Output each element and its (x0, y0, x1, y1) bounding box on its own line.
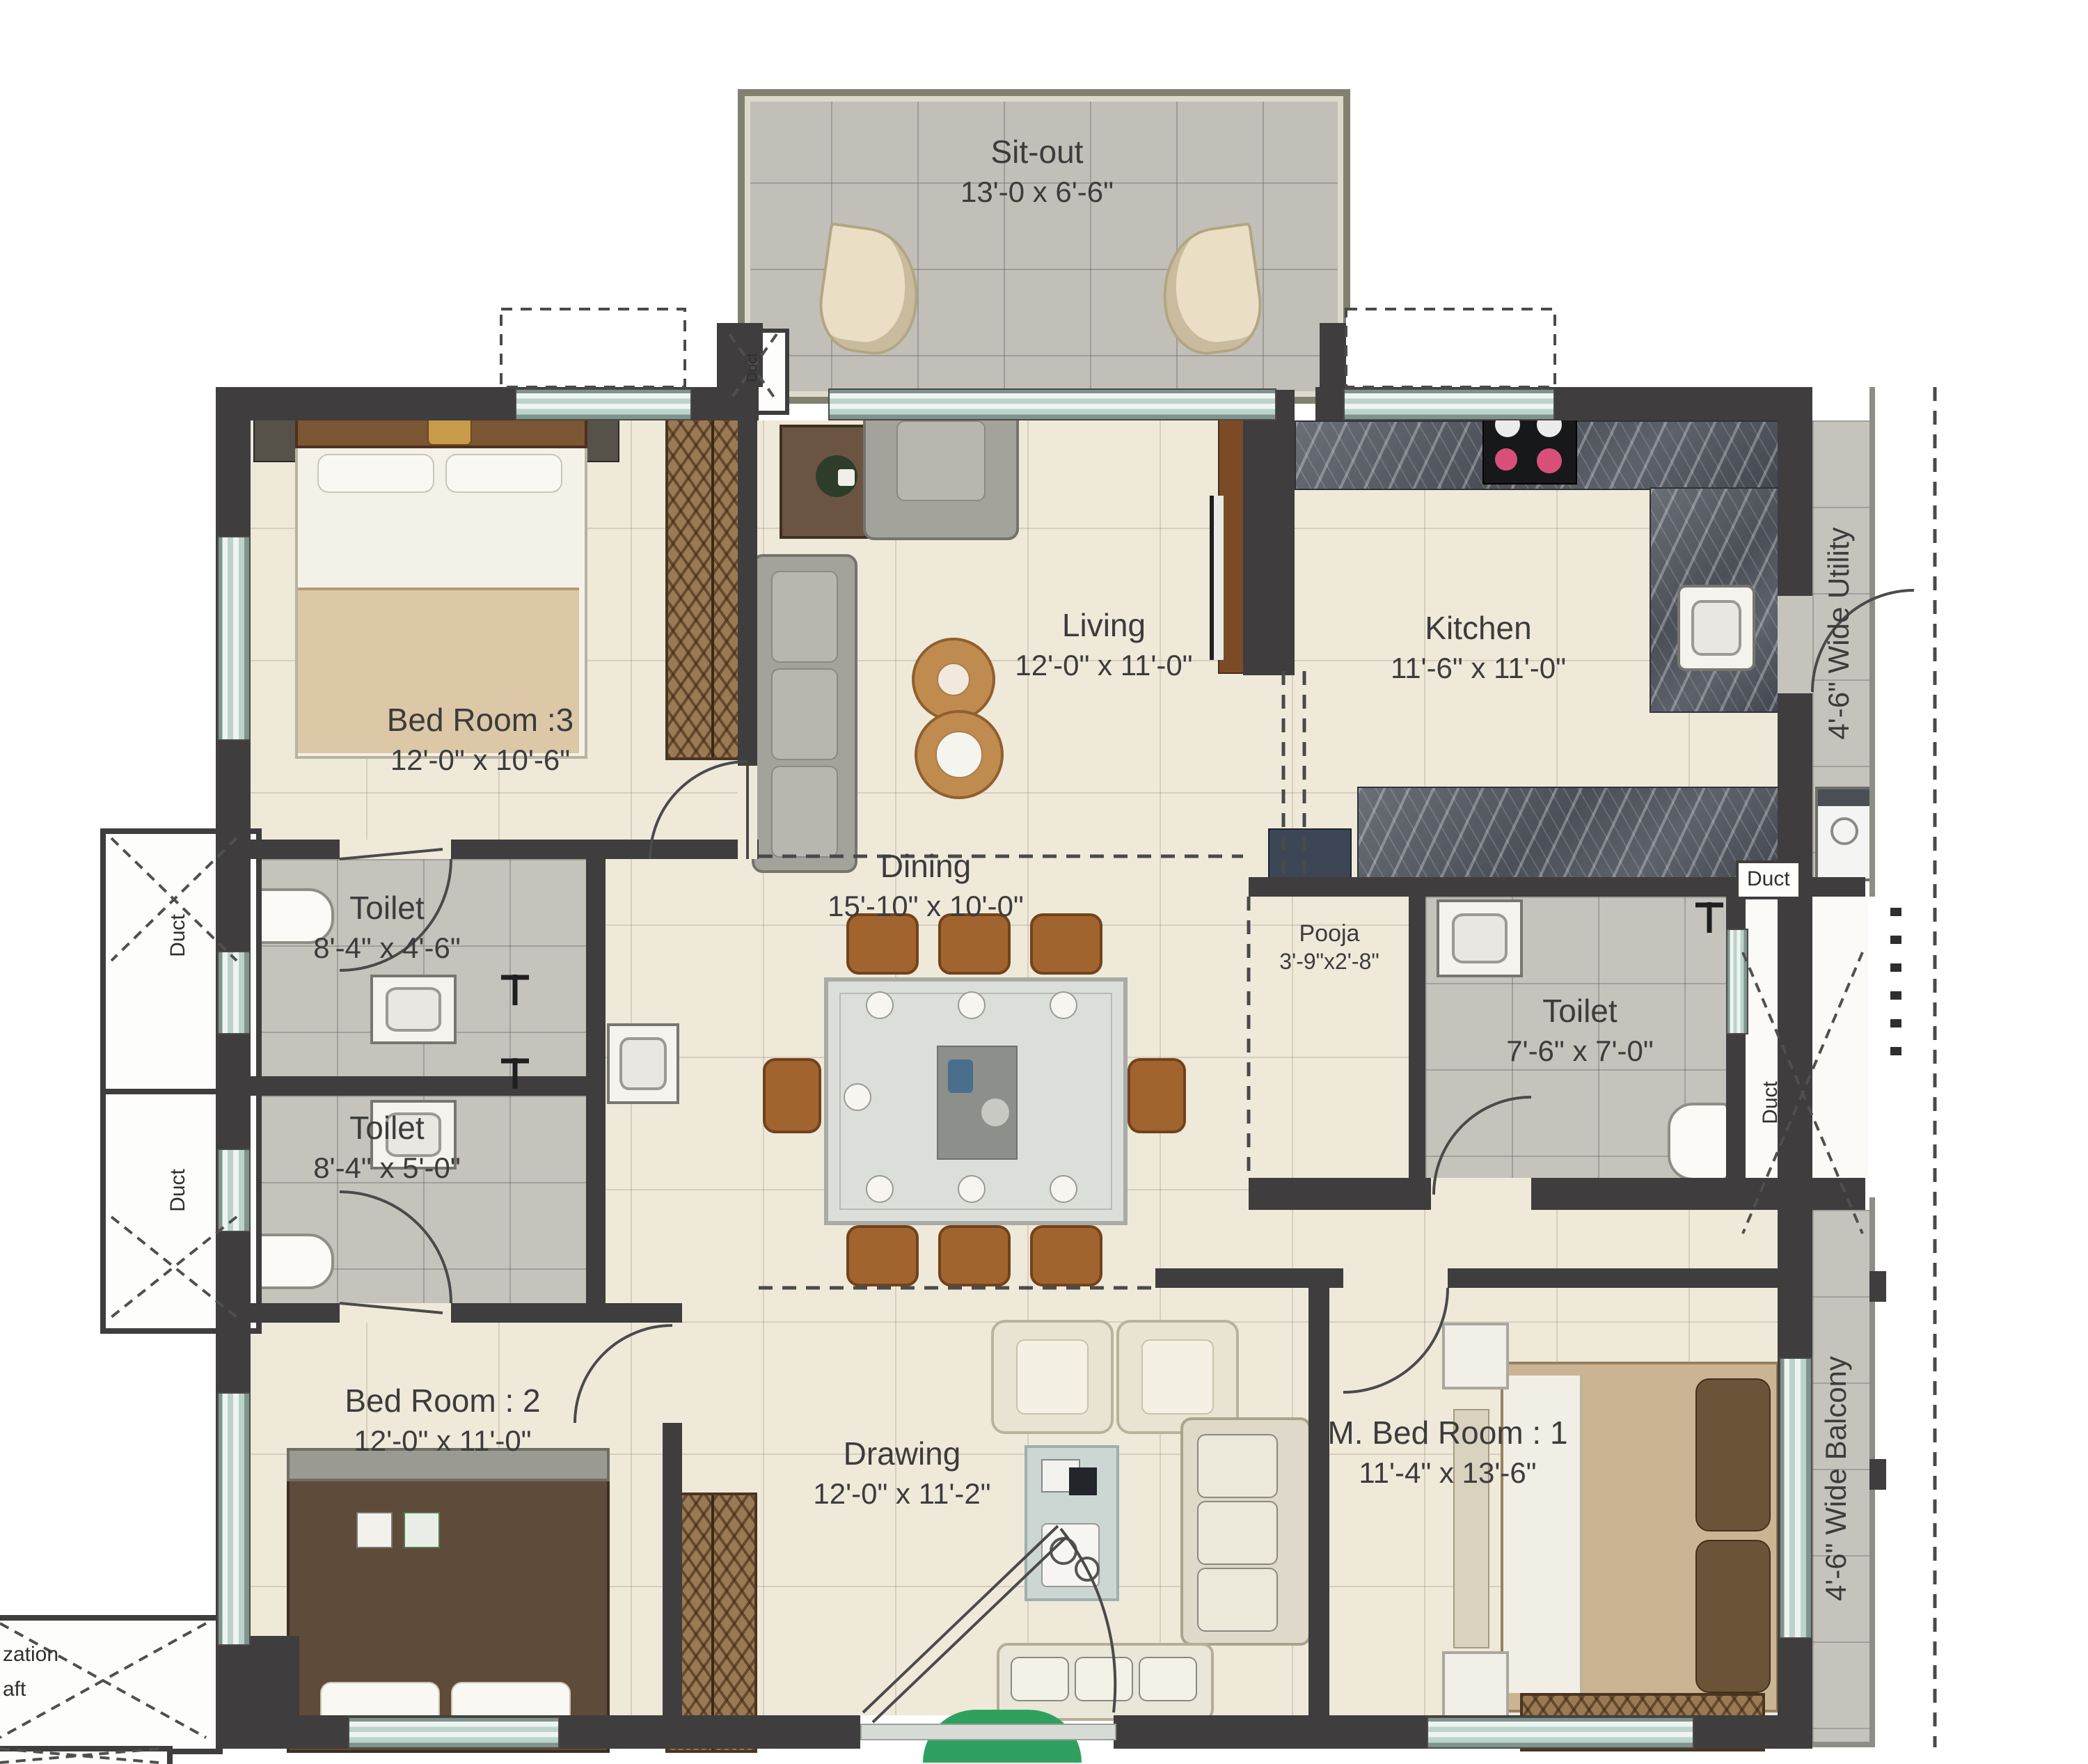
kitchen-name: Kitchen (1391, 608, 1566, 650)
master-bedroom-dims: 11'-4" x 13'-6" (1327, 1455, 1567, 1493)
toilet3-dims: 7'-6" x 7'-0" (1506, 1033, 1654, 1071)
dining-name: Dining (828, 846, 1024, 888)
toilet3-label: Toilet 7'-6" x 7'-0" (1506, 991, 1654, 1071)
toilet2-label: Toilet 8'-4" x 5'-0" (313, 1108, 461, 1188)
sitout-label: Sit-out 13'-0 x 6'-6" (960, 132, 1114, 212)
bedroom3-label: Bed Room :3 12'-0" x 10'-6" (387, 700, 574, 780)
shaft-label-fragment: zation (3, 1643, 58, 1667)
floor-plan-screenshot: Sit-out 13'-0 x 6'-6" (0, 0, 2088, 1764)
drawing-label: Drawing 12'-0" x 11'-2" (813, 1434, 990, 1513)
door-arcs (340, 590, 1914, 1722)
toilet1-label: Toilet 8'-4" x 4'-6" (313, 888, 461, 968)
drawing-dims: 12'-0" x 11'-2" (813, 1476, 990, 1514)
sitout-dims: 13'-0 x 6'-6" (960, 174, 1114, 212)
pooja-label: Pooja 3'-9"x2'-8" (1279, 919, 1379, 979)
projection-outlines (501, 309, 1555, 387)
shaft-label-fragment: aft (3, 1678, 26, 1701)
master-bedroom-name: M. Bed Room : 1 (1327, 1413, 1567, 1455)
dining-dims: 15'-10" x 10'-0" (828, 888, 1024, 927)
bedroom3-name: Bed Room :3 (387, 700, 574, 742)
kitchen-label: Kitchen 11'-6" x 11'-0" (1391, 608, 1566, 688)
pooja-dims: 3'-9"x2'-8" (1279, 950, 1379, 979)
toilet1-name: Toilet (313, 888, 461, 930)
toilet3-name: Toilet (1506, 991, 1654, 1033)
duct-label: Duct (1759, 1081, 1782, 1124)
duct-label: Duct (166, 914, 190, 957)
utility-label: 4'-6" Wide Utility (1824, 527, 1857, 739)
toilet2-dims: 8'-4" x 5'-0" (313, 1150, 461, 1188)
toilet2-name: Toilet (313, 1108, 461, 1150)
living-dims: 12'-0" x 11'-0" (1015, 647, 1192, 686)
master-bedroom-label: M. Bed Room : 1 11'-4" x 13'-6" (1327, 1413, 1567, 1493)
toilet1-dims: 8'-4" x 4'-6" (313, 930, 461, 968)
bedroom3-dims: 12'-0" x 10'-6" (387, 742, 574, 780)
floor-plan: Sit-out 13'-0 x 6'-6" (0, 0, 2088, 1764)
living-label: Living 12'-0" x 11'-0" (1015, 606, 1192, 685)
dining-label: Dining 15'-10" x 10'-0" (828, 846, 1024, 926)
balcony-label: 4'-6" Wide Balcony (1821, 1356, 1854, 1601)
sitout-name: Sit-out (960, 132, 1114, 174)
drawing-name: Drawing (813, 1434, 990, 1476)
bedroom2-dims: 12'-0" x 11'-0" (345, 1423, 540, 1461)
pooja-name: Pooja (1279, 919, 1379, 950)
bedroom2-name: Bed Room : 2 (345, 1381, 540, 1423)
dashed-lines (759, 387, 1935, 1747)
bedroom2-label: Bed Room : 2 12'-0" x 11'-0" (345, 1381, 540, 1460)
living-name: Living (1015, 606, 1192, 647)
duct-label: Duct (745, 353, 761, 381)
duct-label: Duct (1736, 860, 1801, 899)
duct-label: Duct (166, 1169, 190, 1212)
kitchen-dims: 11'-6" x 11'-0" (1391, 650, 1566, 688)
